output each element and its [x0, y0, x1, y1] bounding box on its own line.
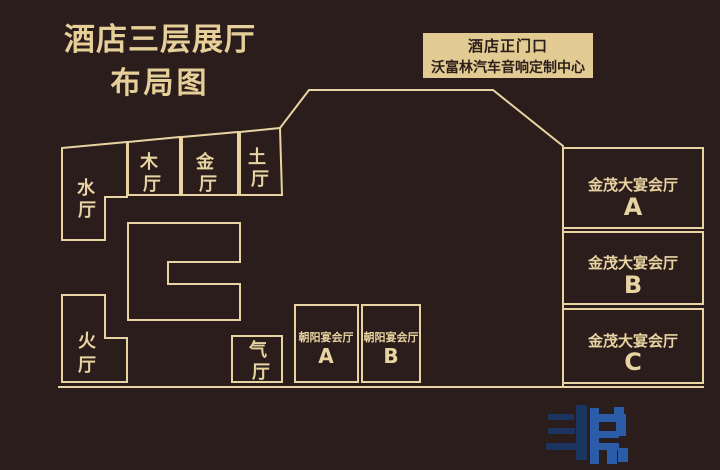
- chaoyang-a-letter: A: [318, 344, 334, 368]
- jinmao-a-label: 金茂大宴会厅: [587, 176, 678, 194]
- watermark-logo: [540, 398, 632, 470]
- jinmao-b-letter: B: [624, 271, 642, 299]
- jinmao-b-label: 金茂大宴会厅: [587, 254, 678, 272]
- air-hall-label: 气: [248, 339, 267, 361]
- gold-hall-label: 金: [195, 151, 215, 173]
- wood-hall-label: 厅: [143, 174, 161, 195]
- fire-hall-label: 火: [78, 331, 97, 352]
- jinmao-a-letter: A: [624, 193, 643, 221]
- chaoyang-b-letter: B: [383, 344, 398, 368]
- water-hall-label: 厅: [78, 200, 96, 221]
- chaoyang-a-label: 朝阳宴会厅: [299, 330, 354, 344]
- layout-poster: 酒店三层展厅 布局图 酒店正门口 沃富林汽车音响定制中心 水 厅 木 厅 金 厅…: [0, 0, 720, 470]
- chaoyang-b-label: 朝阳宴会厅: [364, 330, 419, 344]
- earth-hall-label: 土: [248, 147, 266, 168]
- air-hall-label: 厅: [252, 362, 270, 383]
- gold-hall-label: 厅: [199, 174, 217, 195]
- fire-hall-label: 厅: [78, 355, 96, 376]
- central-structure-wall: [128, 223, 240, 320]
- earth-hall-label: 厅: [251, 169, 269, 190]
- jinmao-c-letter: C: [624, 348, 642, 376]
- water-hall-label: 水: [77, 177, 96, 199]
- wood-hall-label: 木: [139, 151, 159, 173]
